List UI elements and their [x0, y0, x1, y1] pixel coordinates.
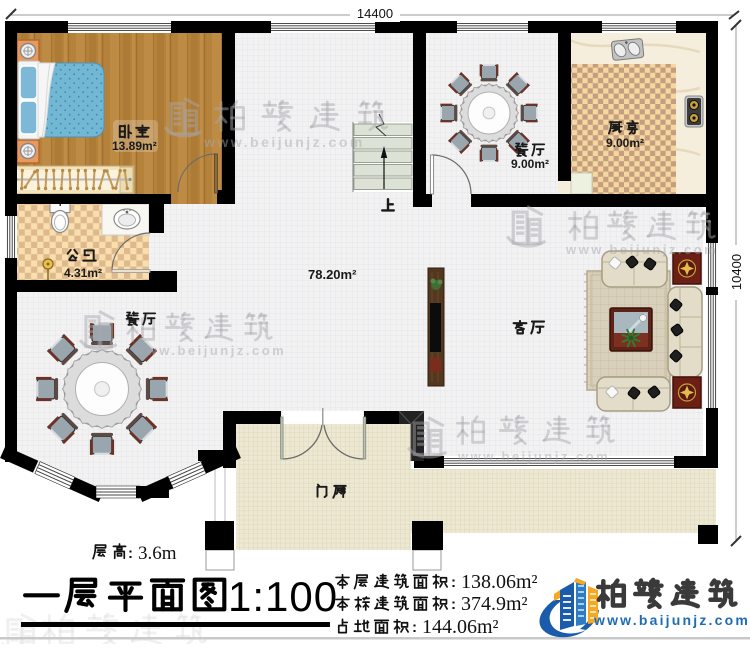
svg-text::: : — [451, 574, 456, 591]
svg-text:www.beijunjz.com: www.beijunjz.com — [133, 343, 286, 358]
svg-text:144.06m²: 144.06m² — [422, 616, 499, 638]
svg-text:www.baijunjz.com: www.baijunjz.com — [593, 612, 750, 628]
svg-text:78.20m²: 78.20m² — [308, 267, 357, 282]
svg-text:10400: 10400 — [729, 254, 744, 290]
svg-text:138.06m²: 138.06m² — [461, 571, 538, 593]
svg-text:www.beijunjz.com: www.beijunjz.com — [457, 449, 610, 464]
svg-text:www.beijunjz.com: www.beijunjz.com — [203, 134, 365, 150]
svg-text:3.6m: 3.6m — [138, 543, 177, 564]
svg-text:9.00m²: 9.00m² — [606, 136, 644, 150]
svg-text:13.89m²: 13.89m² — [112, 139, 157, 153]
svg-text:www.beijunjz.com: www.beijunjz.com — [565, 242, 718, 257]
svg-text::: : — [412, 619, 417, 636]
svg-text::: : — [451, 596, 456, 613]
svg-text::: : — [128, 545, 133, 562]
svg-text:4.31m²: 4.31m² — [64, 266, 102, 280]
svg-text:374.9m²: 374.9m² — [461, 593, 528, 615]
svg-text:1:100: 1:100 — [228, 573, 338, 620]
svg-text:14400: 14400 — [357, 6, 393, 21]
svg-text:9.00m²: 9.00m² — [511, 157, 549, 171]
